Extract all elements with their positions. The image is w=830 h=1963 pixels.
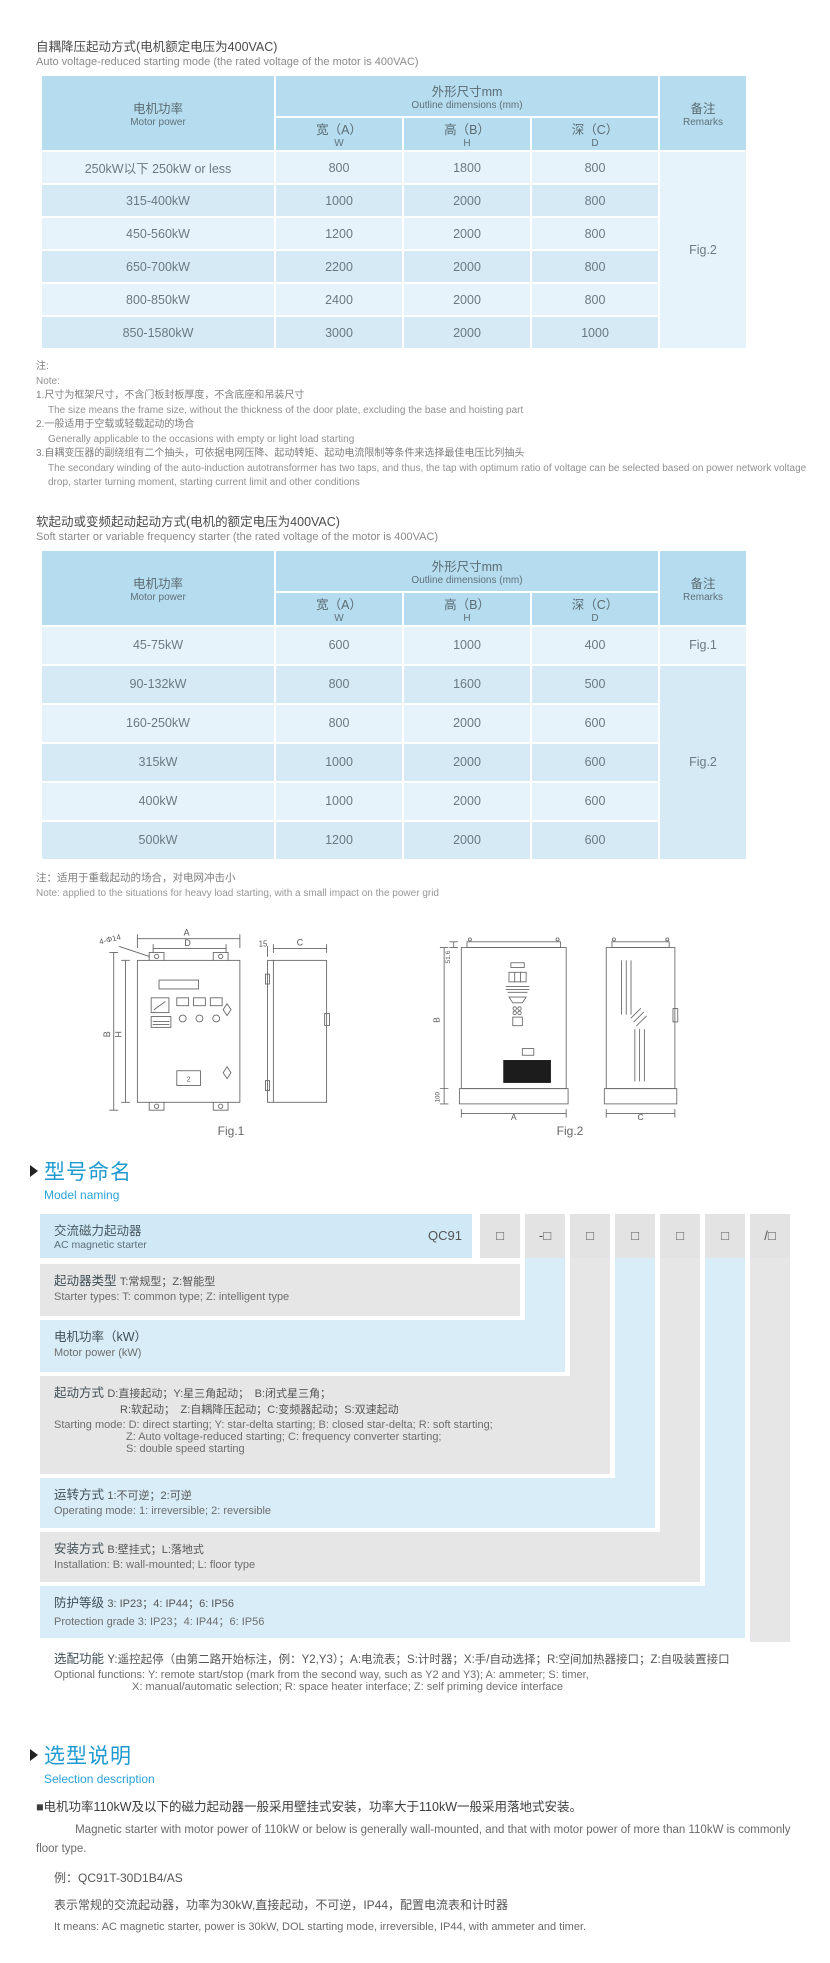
fig2-label: Fig.2 xyxy=(557,1124,584,1138)
cell-h: 2000 xyxy=(404,185,530,216)
table-row: 45-75kW 600 1000 400 Fig.1 xyxy=(42,627,746,664)
cell-w: 3000 xyxy=(276,317,402,348)
product-name-en: AC magnetic starter xyxy=(54,1239,428,1251)
cell-w: 800 xyxy=(276,152,402,183)
cell-w: 800 xyxy=(276,666,402,703)
cell-w: 1200 xyxy=(276,822,402,859)
strip-col3 xyxy=(570,1258,610,1376)
selection-p2-en: It means: AC magnetic starter, power is … xyxy=(54,1921,816,1933)
table-row: 400kW 1000 2000 600 xyxy=(42,783,746,820)
header-width: 宽（A） W xyxy=(276,593,402,625)
cell-d: 800 xyxy=(532,152,658,183)
selection-p1-cn: ■电机功率110kW及以下的磁力起动器一般采用壁挂式安装，功率大于110kW一般… xyxy=(36,1796,816,1815)
floor-cabinet-drawing: 51.6 B 100 A C xyxy=(420,917,720,1122)
cell-w: 800 xyxy=(276,705,402,742)
fig1-dim-c: C xyxy=(297,937,304,947)
code-box-1: □ xyxy=(480,1214,520,1258)
fig1-panel-label: 2 xyxy=(187,1076,191,1083)
cell-d: 800 xyxy=(532,251,658,282)
table-header-row: 电机功率 Motor power 外形尺寸mm Outline dimensio… xyxy=(42,76,746,116)
cell-w: 1000 xyxy=(276,783,402,820)
fig2-dim-516: 51.6 xyxy=(445,950,452,963)
header-motor-power-cn: 电机功率 xyxy=(42,98,274,117)
header-outline-cn: 外形尺寸mm xyxy=(276,81,658,100)
cell-h: 2000 xyxy=(404,284,530,315)
selection-p1-en: Magnetic starter with motor power of 110… xyxy=(36,1821,816,1859)
header-height: 高（B） H xyxy=(404,118,530,150)
selection-title-cn: 选型说明 xyxy=(44,1740,132,1770)
figure-2: 51.6 B 100 A C Fig.2 xyxy=(420,917,720,1138)
code-box-3: □ xyxy=(570,1214,610,1258)
cell-power: 800-850kW xyxy=(42,284,274,315)
table1-title-cn: 自耦降压起动方式(电机额定电压为400VAC) xyxy=(36,36,830,55)
cell-power: 315kW xyxy=(42,744,274,781)
table2-note-cn: 注：适用于重载起动的场合，对电网冲击小 xyxy=(36,871,830,886)
catalog-page: 自耦降压起动方式(电机额定电压为400VAC) Auto voltage-red… xyxy=(0,0,830,1963)
cell-power: 160-250kW xyxy=(42,705,274,742)
header-outline: 外形尺寸mm Outline dimensions (mm) xyxy=(276,76,658,116)
selection-title-en: Selection description xyxy=(44,1772,830,1786)
note3-cn: 3.自耦变压器的副绕组有二个抽头，可依据电网压降、起动转矩、起动电流限制等条件来… xyxy=(36,447,811,462)
cell-h: 1800 xyxy=(404,152,530,183)
cell-remark-fig1: Fig.1 xyxy=(660,627,746,664)
row-optional-functions: 选配功能 Y:遥控起停（由第二路开始标注，例：Y2,Y3）；A:电流表；S:计时… xyxy=(40,1642,800,1710)
note1-cn: 1.尺寸为框架尺寸，不含门板封板厚度，不含底座和吊装尺寸 xyxy=(36,389,811,404)
strip-col7 xyxy=(750,1258,790,1642)
header-outline-en: Outline dimensions (mm) xyxy=(276,100,658,111)
row-motor-power: 电机功率（kW） Motor power (kW) xyxy=(40,1320,565,1372)
cell-d: 800 xyxy=(532,284,658,315)
figure-1: A D 4-Φ14 B H 15 C 2 Fig.1 xyxy=(96,917,366,1138)
cell-d: 1000 xyxy=(532,317,658,348)
cell-h: 2000 xyxy=(404,744,530,781)
row-installation: 安装方式 B:壁挂式；L:落地式 Installation: B: wall-m… xyxy=(40,1532,700,1582)
cell-h: 2000 xyxy=(404,251,530,282)
fig2-dim-a: A xyxy=(511,1112,517,1122)
cell-h: 1600 xyxy=(404,666,530,703)
product-cell: 交流磁力起动器 AC magnetic starter QC91 xyxy=(40,1214,472,1258)
section-arrow-icon xyxy=(30,1749,38,1761)
model-naming-header: 型号命名 Model naming xyxy=(30,1156,830,1202)
row-operating-mode: 运转方式 1:不可逆；2:可逆 Operating mode: 1: irrev… xyxy=(40,1478,655,1528)
cell-power: 650-700kW xyxy=(42,251,274,282)
header-remarks: 备注 Remarks xyxy=(660,551,746,625)
cell-w: 1000 xyxy=(276,185,402,216)
table2-title-en: Soft starter or variable frequency start… xyxy=(36,531,830,543)
table1-title: 自耦降压起动方式(电机额定电压为400VAC) Auto voltage-red… xyxy=(36,36,830,68)
table-row: 315-400kW 1000 2000 800 xyxy=(42,185,746,216)
header-height: 高（B） H xyxy=(404,593,530,625)
fig2-dim-c: C xyxy=(637,1112,643,1122)
fig1-callout: 4-Φ14 xyxy=(98,932,122,946)
row-starter-type: 起动器类型 T:常规型；Z:智能型 Starter types: T: comm… xyxy=(40,1264,520,1316)
cell-h: 2000 xyxy=(404,822,530,859)
cell-h: 1000 xyxy=(404,627,530,664)
table-row: 315kW 1000 2000 600 xyxy=(42,744,746,781)
fig1-dim-d: D xyxy=(184,938,190,948)
fig1-label: Fig.1 xyxy=(218,1124,245,1138)
cell-d: 600 xyxy=(532,822,658,859)
fig1-dim-h: H xyxy=(114,1031,124,1037)
cell-w: 2400 xyxy=(276,284,402,315)
strip-col2 xyxy=(525,1258,565,1320)
cell-w: 1200 xyxy=(276,218,402,249)
cell-remark-fig2: Fig.2 xyxy=(660,666,746,859)
soft-starter-dimensions-table: 电机功率 Motor power 外形尺寸mm Outline dimensio… xyxy=(40,549,748,861)
row-starting-mode: 起动方式 D:直接起动；Y:星三角起动； B:闭式星三角； R:软起动； Z:自… xyxy=(40,1376,610,1474)
code-box-4: □ xyxy=(615,1214,655,1258)
cell-power: 850-1580kW xyxy=(42,317,274,348)
code-box-2: -□ xyxy=(525,1214,565,1258)
auto-reduced-dimensions-table: 电机功率 Motor power 外形尺寸mm Outline dimensio… xyxy=(40,74,748,350)
cell-d: 600 xyxy=(532,705,658,742)
table2-note-en: Note: applied to the situations for heav… xyxy=(36,886,830,901)
table-row: 450-560kW 1200 2000 800 xyxy=(42,218,746,249)
product-name-cn: 交流磁力起动器 xyxy=(54,1220,428,1239)
fig1-dim-15: 15 xyxy=(259,939,268,948)
cell-power: 90-132kW xyxy=(42,666,274,703)
selection-description-header: 选型说明 Selection description xyxy=(30,1740,830,1786)
header-width: 宽（A） W xyxy=(276,118,402,150)
cell-power: 450-560kW xyxy=(42,218,274,249)
table2-title: 软起动或变频起动起动方式(电机的额定电压为400VAC) Soft starte… xyxy=(36,511,830,543)
note2-en: Generally applicable to the occasions wi… xyxy=(48,433,823,448)
note1-en: The size means the frame size, without t… xyxy=(48,404,823,419)
table-row: 90-132kW 800 1600 500 Fig.2 xyxy=(42,666,746,703)
product-code: QC91 xyxy=(428,1228,462,1243)
header-motor-power: 电机功率 Motor power xyxy=(42,76,274,150)
cell-h: 2000 xyxy=(404,218,530,249)
code-box-6: □ xyxy=(705,1214,745,1258)
table1-notes: 注: Note: 1.尺寸为框架尺寸，不含门板封板厚度，不含底座和吊装尺寸 Th… xyxy=(36,360,830,491)
cell-power: 250kW以下 250kW or less xyxy=(42,152,274,183)
cell-d: 800 xyxy=(532,185,658,216)
outline-figures: A D 4-Φ14 B H 15 C 2 Fig.1 xyxy=(96,917,830,1138)
cell-d: 600 xyxy=(532,783,658,820)
model-naming-table: 交流磁力起动器 AC magnetic starter QC91 □ -□ □ … xyxy=(40,1214,800,1714)
cell-w: 2200 xyxy=(276,251,402,282)
header-depth: 深（C） D xyxy=(532,593,658,625)
table1-title-en: Auto voltage-reduced starting mode (the … xyxy=(36,56,830,68)
header-remarks-cn: 备注 xyxy=(660,98,746,117)
header-motor-power-en: Motor power xyxy=(42,117,274,128)
note2-cn: 2.一般适用于空载或轻载起动的场合 xyxy=(36,418,811,433)
cell-d: 500 xyxy=(532,666,658,703)
table-row: 850-1580kW 3000 2000 1000 xyxy=(42,317,746,348)
cell-power: 400kW xyxy=(42,783,274,820)
table-row: 650-700kW 2200 2000 800 xyxy=(42,251,746,282)
wall-mounted-cabinet-drawing: A D 4-Φ14 B H 15 C 2 xyxy=(96,917,366,1122)
cell-h: 2000 xyxy=(404,705,530,742)
note-label-en: Note: xyxy=(36,375,811,390)
selection-description-body: ■电机功率110kW及以下的磁力起动器一般采用壁挂式安装，功率大于110kW一般… xyxy=(36,1796,816,1933)
cell-w: 1000 xyxy=(276,744,402,781)
selection-example: 例：QC91T-30D1B4/AS xyxy=(54,1869,816,1886)
row-protection-grade: 防护等级 3: IP23；4: IP44；6: IP56 Protection … xyxy=(40,1586,745,1638)
selection-p2-cn: 表示常规的交流起动器，功率为30kW,直接起动，不可逆，IP44，配置电流表和计… xyxy=(54,1896,816,1913)
header-motor-power: 电机功率 Motor power xyxy=(42,551,274,625)
cell-power: 315-400kW xyxy=(42,185,274,216)
table2-note: 注：适用于重载起动的场合，对电网冲击小 Note: applied to the… xyxy=(36,871,830,901)
code-box-7: /□ xyxy=(750,1214,790,1258)
table-row: 160-250kW 800 2000 600 xyxy=(42,705,746,742)
header-depth: 深（C） D xyxy=(532,118,658,150)
model-naming-title-cn: 型号命名 xyxy=(44,1156,132,1186)
table-row: 500kW 1200 2000 600 xyxy=(42,822,746,859)
note3-en: The secondary winding of the auto-induct… xyxy=(48,462,823,491)
table-header-row: 电机功率 Motor power 外形尺寸mm Outline dimensio… xyxy=(42,551,746,591)
table-row: 250kW以下 250kW or less 800 1800 800 Fig.2 xyxy=(42,152,746,183)
cell-h: 2000 xyxy=(404,783,530,820)
code-box-5: □ xyxy=(660,1214,700,1258)
cell-d: 600 xyxy=(532,744,658,781)
header-outline: 外形尺寸mm Outline dimensions (mm) xyxy=(276,551,658,591)
strip-col6 xyxy=(705,1258,745,1586)
strip-col4 xyxy=(615,1258,655,1478)
strip-col5 xyxy=(660,1258,700,1532)
cell-w: 600 xyxy=(276,627,402,664)
header-remarks-en: Remarks xyxy=(660,117,746,128)
table2-title-cn: 软起动或变频起动起动方式(电机的额定电压为400VAC) xyxy=(36,511,830,530)
fig1-dim-a: A xyxy=(184,927,190,937)
note-label-cn: 注: xyxy=(36,360,811,375)
cell-d: 800 xyxy=(532,218,658,249)
cell-power: 500kW xyxy=(42,822,274,859)
cell-power: 45-75kW xyxy=(42,627,274,664)
cell-d: 400 xyxy=(532,627,658,664)
header-remarks: 备注 Remarks xyxy=(660,76,746,150)
fig1-dim-b: B xyxy=(102,1031,112,1037)
section-arrow-icon xyxy=(30,1165,38,1177)
fig2-dim-100: 100 xyxy=(434,1091,441,1102)
model-naming-title-en: Model naming xyxy=(44,1188,830,1202)
table-row: 800-850kW 2400 2000 800 xyxy=(42,284,746,315)
cell-h: 2000 xyxy=(404,317,530,348)
fig2-dim-b: B xyxy=(431,1016,441,1022)
cell-remark-fig2: Fig.2 xyxy=(660,152,746,348)
